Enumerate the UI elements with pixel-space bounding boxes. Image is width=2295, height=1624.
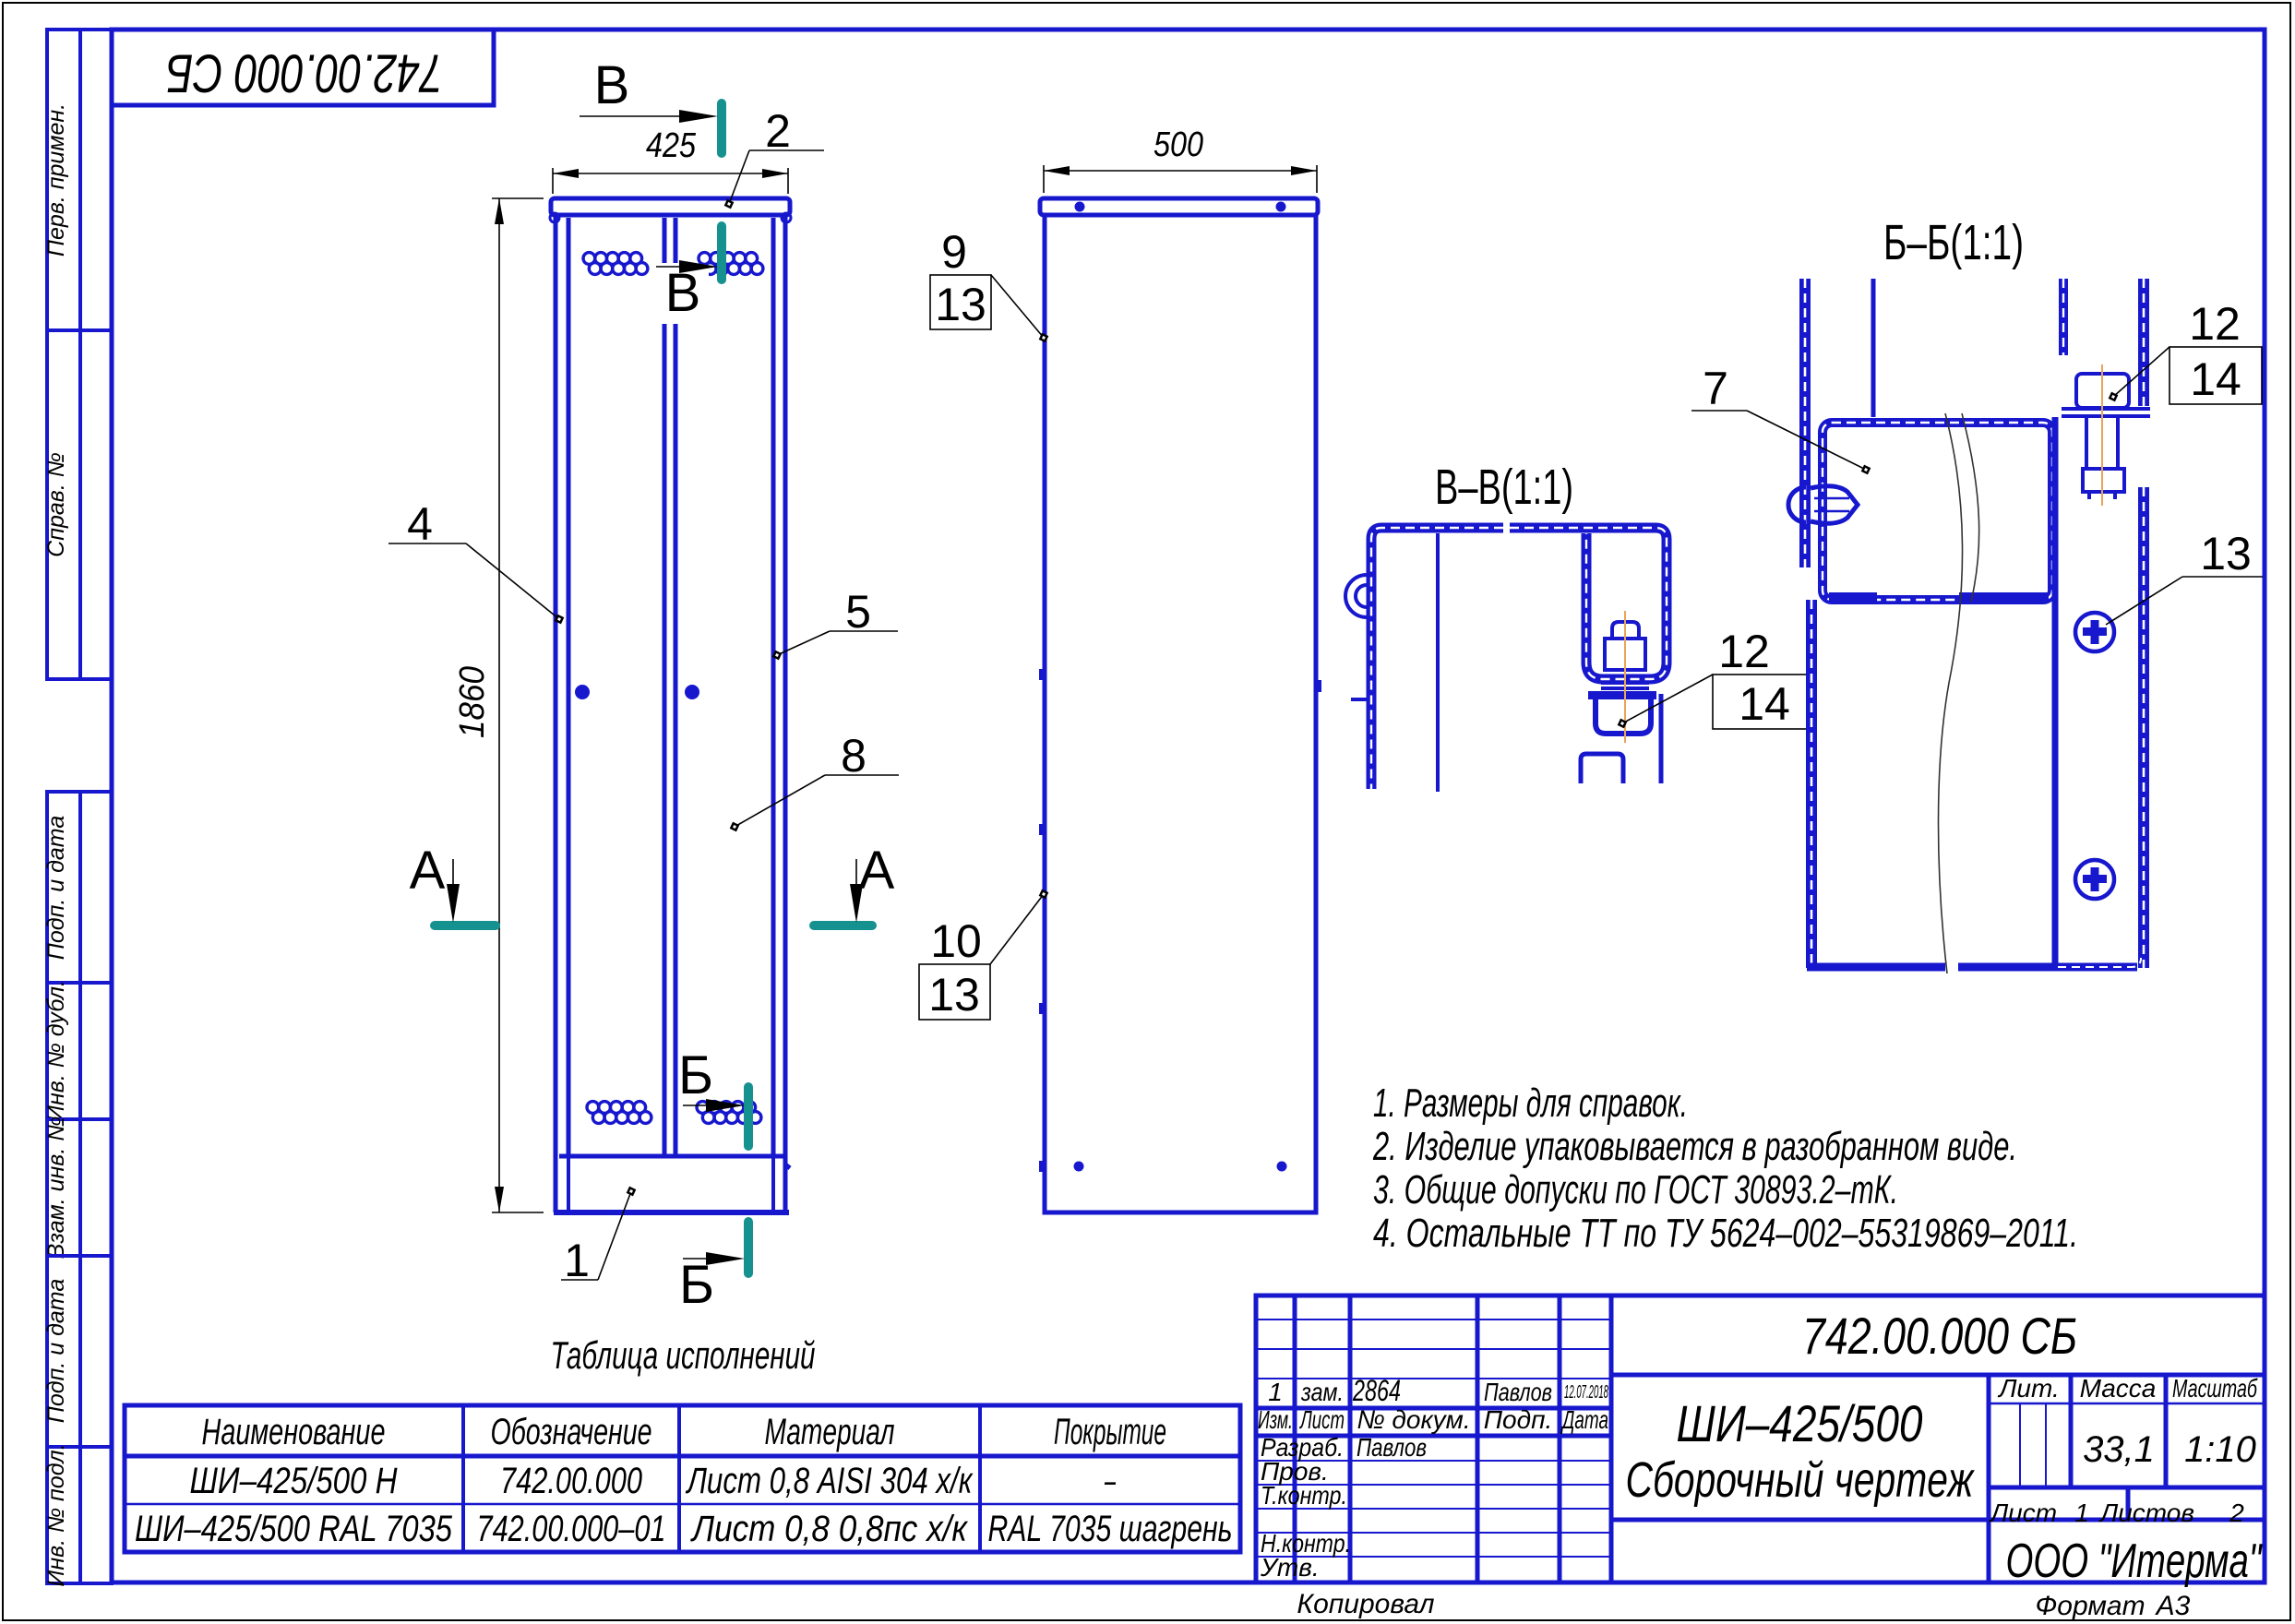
- svg-text:4. Остальные ТТ по ТУ 5624–002: 4. Остальные ТТ по ТУ 5624–002–55319869–…: [1373, 1211, 2078, 1256]
- svg-text:Подп.: Подп.: [1484, 1405, 1553, 1434]
- svg-text:Утв.: Утв.: [1260, 1553, 1320, 1582]
- svg-text:13: 13: [2200, 528, 2252, 579]
- svg-text:RAL 7035 шагрень: RAL 7035 шагрень: [988, 1509, 1233, 1549]
- svg-text:Лист 0,8 AISI 304 х/к: Лист 0,8 AISI 304 х/к: [685, 1461, 974, 1501]
- svg-text:742.00.000 СБ: 742.00.000 СБ: [166, 43, 443, 103]
- svg-text:В: В: [665, 263, 701, 323]
- svg-text:Копировал: Копировал: [1297, 1589, 1434, 1619]
- svg-text:1: 1: [1268, 1378, 1283, 1406]
- svg-text:14: 14: [1739, 678, 1790, 730]
- svg-text:742.00.000–01: 742.00.000–01: [477, 1509, 666, 1549]
- svg-text:2864: 2864: [1352, 1374, 1401, 1407]
- svg-text:500: 500: [1153, 125, 1203, 164]
- svg-text:ООО "Итерма": ООО "Итерма": [2006, 1534, 2264, 1588]
- svg-text:742.00.000: 742.00.000: [500, 1461, 642, 1501]
- svg-text:425: 425: [646, 126, 697, 165]
- svg-text:Т.контр.: Т.контр.: [1261, 1481, 1347, 1510]
- svg-text:Павлов: Павлов: [1357, 1433, 1427, 1462]
- svg-text:1. Размеры для справок.: 1. Размеры для справок.: [1373, 1081, 1688, 1126]
- svg-text:Инв. № дубл.: Инв. № дубл.: [43, 980, 69, 1122]
- svg-text:5: 5: [845, 586, 871, 638]
- svg-text:Сборочный чертеж: Сборочный чертеж: [1626, 1452, 1976, 1508]
- svg-text:Лист: Лист: [1299, 1405, 1345, 1434]
- svg-text:13: 13: [935, 279, 986, 330]
- svg-text:ШИ–425/500 RAL 7035: ШИ–425/500 RAL 7035: [135, 1509, 453, 1549]
- svg-text:10: 10: [930, 915, 982, 967]
- svg-text:12: 12: [2189, 298, 2241, 350]
- svg-text:Б–Б(1:1): Б–Б(1:1): [1883, 215, 2024, 270]
- svg-text:В: В: [594, 55, 630, 115]
- svg-text:Обозначение: Обозначение: [491, 1412, 652, 1452]
- svg-text:Наименование: Наименование: [202, 1412, 386, 1452]
- svg-text:Подп. и дата: Подп. и дата: [43, 816, 69, 961]
- svg-text:12.07.2018: 12.07.2018: [1564, 1382, 1608, 1403]
- svg-text:Формат: Формат: [2035, 1591, 2145, 1621]
- svg-text:Подп. и дата: Подп. и дата: [43, 1279, 69, 1424]
- svg-text:В–В(1:1): В–В(1:1): [1435, 460, 1573, 515]
- svg-text:Б: Б: [678, 1045, 713, 1105]
- svg-text:14: 14: [2190, 353, 2241, 405]
- svg-text:№ докум.: № докум.: [1357, 1405, 1470, 1434]
- svg-text:9: 9: [941, 226, 967, 278]
- svg-text:Листов: Листов: [2098, 1499, 2194, 1527]
- svg-text:13: 13: [928, 969, 980, 1021]
- svg-text:1: 1: [564, 1235, 590, 1286]
- svg-text:Лист 0,8 0,8пс х/к: Лист 0,8 0,8пс х/к: [689, 1509, 968, 1549]
- svg-text:2: 2: [2229, 1499, 2244, 1527]
- svg-text:12: 12: [1718, 626, 1770, 677]
- svg-text:Дата: Дата: [1560, 1405, 1608, 1434]
- svg-text:Покрытие: Покрытие: [1054, 1412, 1166, 1452]
- svg-text:Лит.: Лит.: [1997, 1374, 2060, 1403]
- svg-text:Таблица исполнений: Таблица исполнений: [551, 1333, 816, 1377]
- svg-text:Изм.: Изм.: [1258, 1405, 1293, 1434]
- svg-text:1: 1: [2074, 1499, 2089, 1527]
- svg-text:Павлов: Павлов: [1484, 1378, 1552, 1406]
- svg-text:Перв. примен.: Перв. примен.: [43, 103, 69, 257]
- svg-text:А3: А3: [2155, 1591, 2191, 1621]
- svg-text:2: 2: [765, 105, 791, 157]
- svg-text:ШИ–425/500 Н: ШИ–425/500 Н: [190, 1461, 398, 1501]
- svg-text:33,1: 33,1: [2083, 1429, 2155, 1470]
- svg-text:8: 8: [841, 730, 867, 782]
- svg-text:7: 7: [1703, 363, 1728, 414]
- svg-text:4: 4: [407, 498, 433, 550]
- svg-text:Б: Б: [679, 1255, 714, 1315]
- svg-text:зам.: зам.: [1300, 1378, 1344, 1406]
- svg-text:Масса: Масса: [2080, 1374, 2157, 1403]
- svg-text:Материал: Материал: [765, 1412, 895, 1452]
- svg-text:1:10: 1:10: [2184, 1429, 2256, 1470]
- svg-text:1860: 1860: [453, 666, 492, 738]
- svg-text:Инв. № подл.: Инв. № подл.: [43, 1443, 69, 1586]
- svg-text:А: А: [859, 841, 895, 901]
- svg-text:ШИ–425/500: ШИ–425/500: [1677, 1394, 1923, 1452]
- svg-text:Масштаб: Масштаб: [2172, 1374, 2258, 1403]
- svg-text:Справ. №: Справ. №: [43, 452, 69, 557]
- svg-text:–: –: [1104, 1461, 1116, 1501]
- svg-text:А: А: [410, 841, 446, 901]
- svg-text:Взам. инв. №: Взам. инв. №: [43, 1116, 69, 1260]
- svg-text:742.00.000 СБ: 742.00.000 СБ: [1802, 1307, 2077, 1365]
- svg-text:2. Изделие упаковывается в раз: 2. Изделие упаковывается в разобранном в…: [1372, 1124, 2017, 1169]
- svg-text:3. Общие допуски по ГОСТ 30893: 3. Общие допуски по ГОСТ 30893.2–тК.: [1373, 1167, 1898, 1212]
- svg-text:Лист: Лист: [1989, 1499, 2057, 1527]
